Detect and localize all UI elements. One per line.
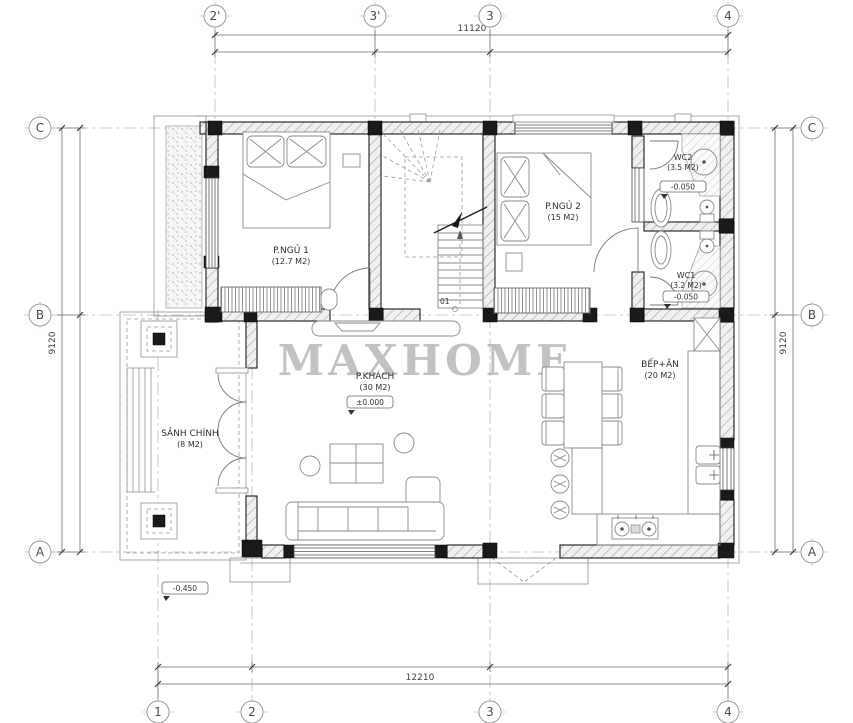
floor-plan-page: 11120 12210 9120 9120 2' 3' 3 4 1 2 3 4 … (0, 0, 853, 723)
bar-stools (551, 449, 569, 519)
grid-bubble-left-C: C (24, 114, 56, 142)
svg-text:4: 4 (724, 705, 732, 719)
level-tag-living: ±0.000 (347, 396, 393, 415)
label-kitchen-area: (20 M2) (645, 371, 676, 380)
window-wc-partition (632, 168, 644, 222)
svg-text:A: A (36, 545, 45, 559)
svg-text:4: 4 (724, 9, 732, 23)
svg-text:C: C (808, 121, 816, 135)
grid-bubble-top-4: 4 (712, 2, 744, 30)
svg-text:3: 3 (486, 9, 494, 23)
pouf (394, 433, 414, 453)
grid-bubble-left-A: A (24, 538, 56, 566)
nightstand (506, 253, 522, 271)
floor-plan-drawing: 11120 12210 9120 9120 2' 3' 3 4 1 2 3 4 … (0, 0, 853, 723)
svg-text:C: C (36, 121, 44, 135)
pilaster (675, 114, 691, 122)
tv-console (312, 321, 460, 336)
sink (696, 466, 720, 484)
grid-bubble-right-C: C (796, 114, 828, 142)
label-bedroom2-name: P.NGỦ 2 (545, 200, 581, 212)
svg-text:-0.050: -0.050 (671, 183, 695, 192)
bed-bedroom1 (243, 132, 360, 228)
grid-bubble-bottom-2: 2 (236, 698, 268, 723)
fridge (694, 318, 720, 351)
label-wc1-area: (3.2 M2) (670, 281, 701, 290)
svg-text:B: B (808, 308, 816, 322)
dim-right: 9120 (779, 331, 789, 354)
label-hall-area: (8 M2) (177, 440, 203, 449)
svg-text:-0.450: -0.450 (173, 584, 197, 593)
grid-bubble-bottom-4: 4 (712, 698, 744, 723)
stair-flight-label: 01 (440, 297, 450, 306)
planter (166, 126, 202, 308)
pouf (300, 456, 320, 476)
coffee-table (330, 444, 383, 483)
nightstand (343, 154, 360, 167)
window-bedroom2-top (513, 115, 614, 134)
svg-text:3': 3' (370, 9, 381, 23)
grid-bubble-bottom-3: 3 (474, 698, 506, 723)
dim-top: 11120 (458, 24, 487, 34)
toilet (700, 231, 714, 253)
wardrobe-bedroom1 (221, 287, 321, 312)
svg-text:A: A (808, 545, 817, 559)
window-kitchen-right (720, 448, 734, 490)
svg-text:2': 2' (210, 9, 221, 23)
vanity (651, 231, 671, 269)
sofa (286, 477, 444, 540)
svg-text:2: 2 (248, 705, 256, 719)
label-bedroom2-area: (15 M2) (548, 213, 579, 222)
label-wc2-name: WC2 (674, 153, 693, 162)
dim-left: 9120 (48, 331, 58, 354)
label-kitchen-name: BẾP+ĂN (641, 358, 679, 370)
door-folding-entrance (216, 368, 248, 493)
label-bedroom1-area: (12.7 M2) (272, 257, 311, 266)
label-living-name: P.KHÁCH (356, 370, 395, 382)
pilaster (410, 114, 426, 122)
svg-text:B: B (36, 308, 44, 322)
window-living-bottom (294, 545, 435, 558)
wardrobe-end (321, 289, 337, 310)
label-wc2-area: (3.5 M2) (667, 163, 698, 172)
wardrobe-bedroom2 (494, 288, 590, 313)
porch-column (141, 503, 177, 539)
grid-bubble-bottom-1: 1 (142, 698, 174, 723)
grid-bubble-top-2p: 2' (199, 2, 231, 30)
svg-text:1: 1 (154, 705, 162, 719)
grid-bubble-top-3p: 3' (359, 2, 391, 30)
window-bedroom1-left (206, 178, 218, 268)
sink (696, 446, 720, 464)
cooktop (612, 515, 658, 539)
rear-porch (478, 558, 588, 584)
label-living-area: (30 M2) (360, 383, 391, 392)
door-bedroom2 (594, 228, 638, 272)
grid-bubble-left-B: B (24, 301, 56, 329)
label-bedroom1-name: P.NGỦ 1 (273, 244, 309, 256)
svg-text:-0.050: -0.050 (674, 293, 698, 302)
watermark-text: MAXHOME (278, 336, 572, 385)
island-counter (572, 448, 602, 514)
porch-column (141, 321, 177, 357)
level-tag-porch: -0.450 (162, 582, 208, 601)
label-hall-name: SẢNH CHÍNH (161, 427, 218, 439)
svg-text:3: 3 (486, 705, 494, 719)
bed-bedroom2 (497, 153, 591, 271)
dim-bottom: 12210 (406, 673, 435, 683)
label-wc1-name: WC1 (677, 271, 696, 280)
staircase: 01 (383, 129, 487, 312)
dining-table (564, 362, 602, 448)
grid-bubble-right-A: A (796, 538, 828, 566)
side-ledge (230, 558, 290, 582)
vanity (651, 189, 671, 227)
svg-text:±0.000: ±0.000 (356, 398, 384, 407)
toilet (700, 200, 714, 222)
grid-bubble-right-B: B (796, 301, 828, 329)
